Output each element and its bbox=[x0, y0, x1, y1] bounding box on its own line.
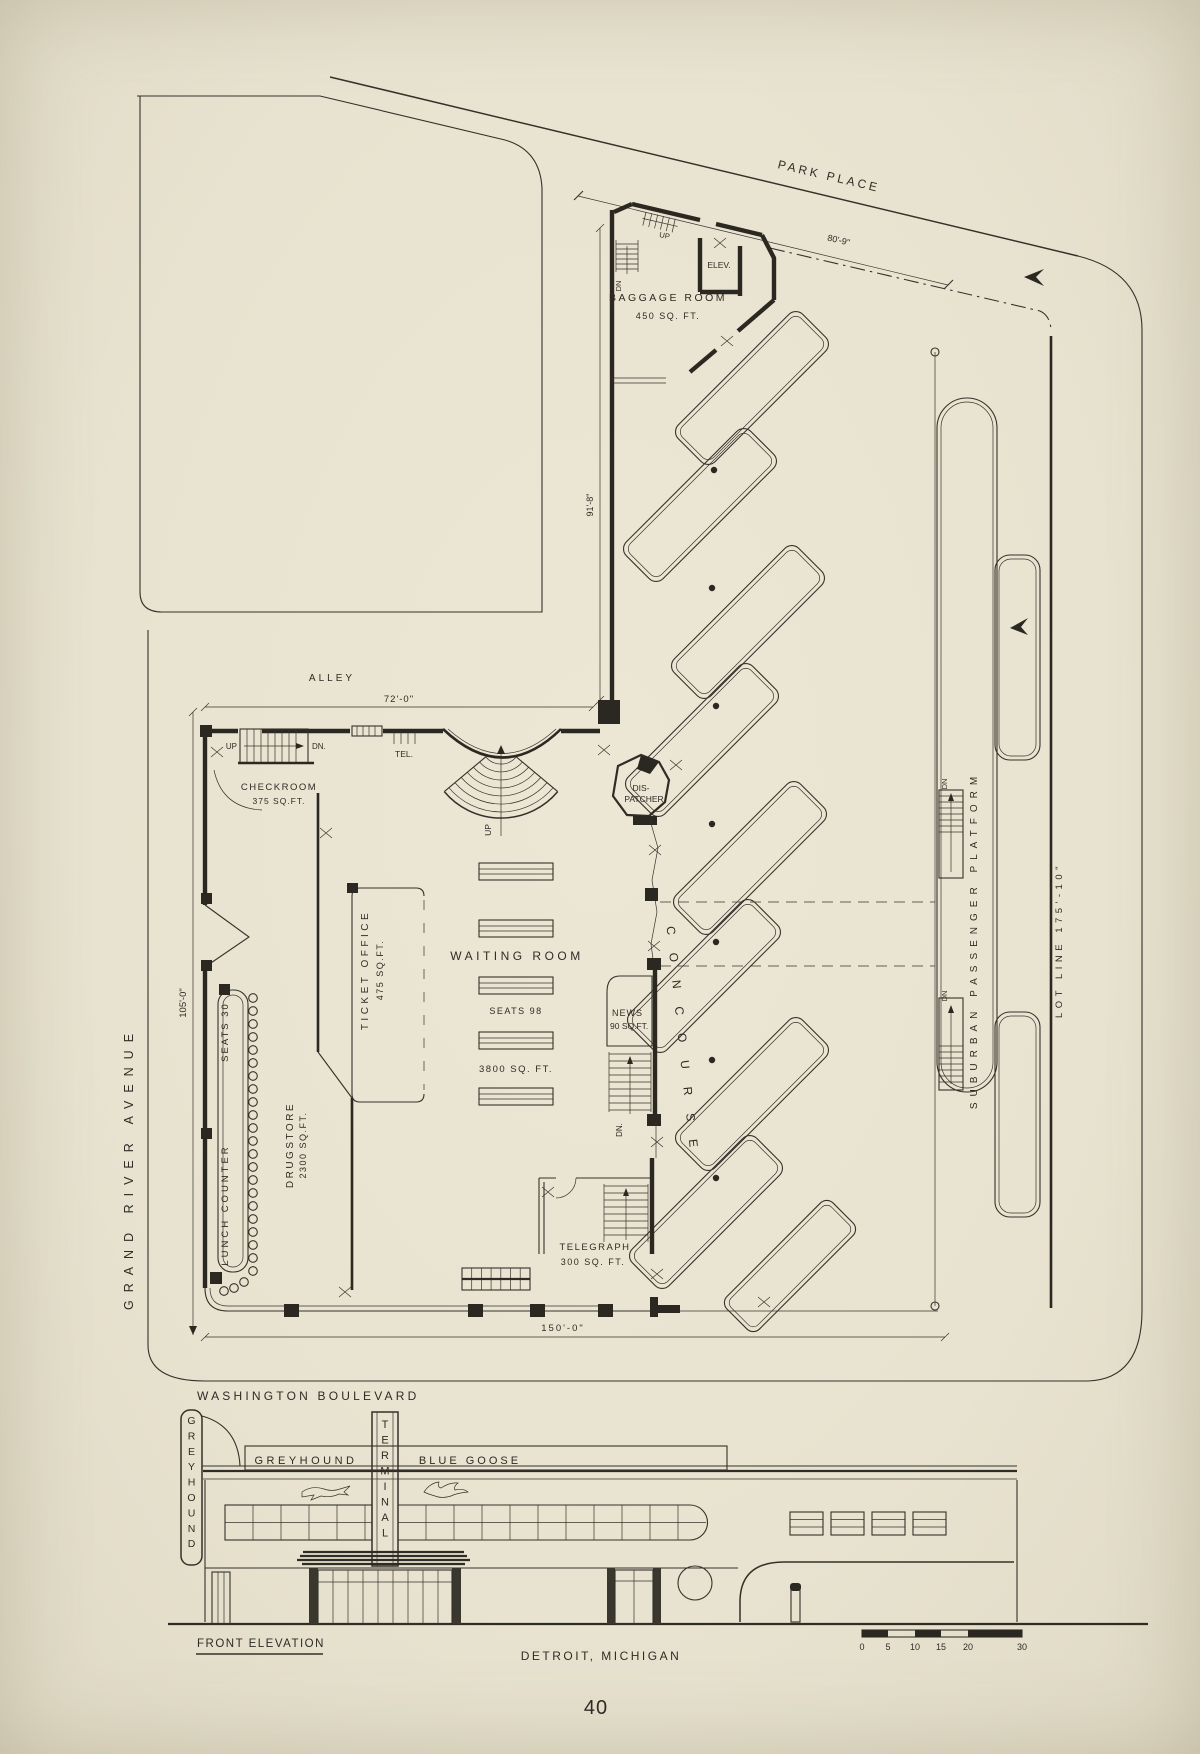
telegraph-label: TELEGRAPH bbox=[559, 1242, 630, 1253]
pier bbox=[598, 1304, 613, 1317]
bus-entrance-opening bbox=[740, 1562, 1014, 1622]
bus-bay bbox=[619, 424, 780, 585]
platform-stair bbox=[939, 998, 963, 1090]
front-elevation-title: FRONT ELEVATION bbox=[197, 1638, 325, 1650]
greyhound-dog-icon bbox=[302, 1486, 350, 1500]
east-curb-line bbox=[1078, 256, 1142, 1381]
concourse-colonnade bbox=[645, 820, 661, 974]
door-swing-x-icon bbox=[649, 845, 661, 855]
dim-80-9-label: 80'-9" bbox=[826, 233, 851, 248]
suburban-bus-stall bbox=[995, 555, 1040, 760]
page-number: 40 bbox=[584, 1697, 608, 1719]
door-hatch bbox=[357, 726, 375, 736]
elevator-label: ELEV. bbox=[707, 260, 730, 270]
door-swing-x-icon bbox=[211, 747, 223, 757]
blue-goose-band-sign: BLUE GOOSE bbox=[419, 1455, 521, 1467]
baggage-se-wall bbox=[690, 300, 774, 372]
lot-line-angled bbox=[770, 248, 1051, 332]
stair-down-label: DN bbox=[940, 779, 949, 790]
island-platform bbox=[937, 398, 997, 1092]
south-wall bbox=[205, 1288, 612, 1311]
door-swing-x-icon bbox=[339, 1287, 351, 1297]
bench bbox=[479, 977, 553, 994]
suburban-bus-stall-inner bbox=[999, 559, 1036, 756]
adjacent-block-outline bbox=[137, 96, 542, 612]
door-swing-x-icon bbox=[721, 336, 733, 346]
baggage-south-wall bbox=[614, 378, 666, 383]
pier bbox=[201, 893, 212, 904]
ribbon-windows bbox=[225, 1505, 708, 1540]
bollard bbox=[790, 1583, 801, 1622]
dim-line-150-0 bbox=[201, 1333, 949, 1341]
door-swing-x-icon bbox=[598, 745, 610, 755]
dim-105-0-label: 105'-0" bbox=[178, 988, 189, 1017]
lot-line-label: LOT LINE 175'-10" bbox=[1054, 862, 1065, 1018]
ticket-office-label: TICKET OFFICE bbox=[360, 910, 371, 1030]
yard-post bbox=[711, 467, 717, 473]
entrance-doors bbox=[309, 1568, 461, 1624]
scale-tick-20: 20 bbox=[963, 1642, 973, 1652]
telegraph-area: 300 SQ. FT. bbox=[561, 1257, 626, 1267]
entrance-marquee bbox=[297, 1552, 470, 1564]
bench bbox=[479, 1032, 553, 1049]
alley-label: ALLEY bbox=[309, 673, 355, 684]
lunch-counter-label: LUNCH COUNTER bbox=[220, 1144, 231, 1265]
baggage-stair-down bbox=[616, 240, 638, 274]
scale-tick-10: 10 bbox=[910, 1642, 920, 1652]
scale-tick-30: 30 bbox=[1017, 1642, 1027, 1652]
pier bbox=[219, 984, 230, 995]
greyhound-band-sign: GREYHOUND bbox=[254, 1455, 357, 1467]
yard-post bbox=[713, 1175, 719, 1181]
stair-up-label: UP bbox=[483, 824, 493, 836]
pier bbox=[530, 1304, 545, 1317]
dispatcher-label-2: PATCHER bbox=[624, 794, 663, 804]
ticket-office-area: 475 SQ.FT. bbox=[375, 940, 385, 1001]
door-swing-x-icon bbox=[320, 828, 332, 838]
door-swing-x-icon bbox=[670, 760, 682, 770]
pier bbox=[468, 1304, 483, 1317]
pier bbox=[200, 725, 212, 737]
news-stand bbox=[607, 958, 661, 1126]
pier bbox=[284, 1304, 299, 1317]
scale-tick-15: 15 bbox=[936, 1642, 946, 1652]
bus-bay bbox=[671, 307, 832, 468]
side-door bbox=[212, 1572, 230, 1624]
concourse-stair-down bbox=[609, 1052, 651, 1114]
small-windows bbox=[790, 1512, 946, 1535]
dim-91-8-label: 91'-8" bbox=[585, 494, 595, 517]
baggage-room-area: 450 SQ. FT. bbox=[636, 311, 701, 321]
suburban-bus-stall bbox=[995, 1012, 1040, 1217]
loading-lane-dashes bbox=[660, 902, 935, 966]
island-platform-inner bbox=[941, 402, 993, 1088]
waiting-room-label: WAITING ROOM bbox=[450, 949, 584, 963]
yard-post bbox=[713, 939, 719, 945]
bus-bay bbox=[625, 1131, 786, 1292]
grand-stair-fan bbox=[444, 745, 557, 836]
yard-post bbox=[713, 703, 719, 709]
lunch-counter-seats: SEATS 30 bbox=[220, 1002, 231, 1062]
drugstore-label: DRUGSTORE bbox=[285, 1102, 296, 1188]
scale-tick-5: 5 bbox=[885, 1642, 890, 1652]
park-place-label: PARK PLACE bbox=[776, 157, 881, 195]
front-elevation: GREYHOUND BLUE GOOSE GREYHOUND TERMINAL bbox=[168, 1410, 1148, 1663]
baggage-wing bbox=[612, 204, 774, 705]
stair-down-label: DN bbox=[614, 281, 623, 292]
bus-bay bbox=[721, 1197, 860, 1336]
dispatcher-label-1: DIS- bbox=[633, 783, 650, 793]
door-swing-x-icon bbox=[758, 1297, 770, 1307]
pier bbox=[210, 1272, 222, 1284]
stair-up-label: UP bbox=[226, 742, 237, 751]
platform-label: SUBURBAN PASSENGER PLATFORM bbox=[969, 771, 980, 1109]
blade-sign-letters: GREYHOUND bbox=[187, 1415, 195, 1550]
porthole-window bbox=[678, 1566, 712, 1600]
door-swing-x-icon bbox=[651, 1137, 663, 1147]
news-stand-label: NEWS bbox=[612, 1008, 643, 1018]
grand-river-avenue-label: GRAND RIVER AVENUE bbox=[122, 1026, 136, 1310]
pier bbox=[201, 960, 212, 971]
waiting-room-seats: SEATS 98 bbox=[489, 1006, 542, 1016]
door-swing-x-icon bbox=[651, 1269, 663, 1279]
dim-line-105-0 bbox=[189, 708, 197, 1335]
stair-down-label: DN. bbox=[615, 1123, 624, 1137]
bus-bay bbox=[667, 541, 828, 702]
yard-post bbox=[709, 585, 715, 591]
concourse-label: CONCOURSE bbox=[663, 925, 702, 1165]
turnstile-grid bbox=[462, 1268, 530, 1290]
stair-down-label: DN. bbox=[312, 742, 326, 751]
checkroom-label: CHECKROOM bbox=[241, 782, 317, 793]
dim-72-0-label: 72'-0" bbox=[384, 694, 414, 705]
baggage-room-label: BAGGAGE ROOM bbox=[609, 292, 727, 304]
door-swing-x-icon bbox=[648, 941, 660, 951]
bench bbox=[479, 1088, 553, 1105]
pier bbox=[201, 1128, 212, 1139]
ticket-counter bbox=[347, 883, 424, 1102]
right-doors bbox=[607, 1568, 661, 1624]
yard-post bbox=[709, 1057, 715, 1063]
bus-bay bbox=[669, 777, 830, 938]
south-wall-inner bbox=[210, 1288, 612, 1306]
bench bbox=[479, 920, 553, 937]
checkroom-area: 375 SQ.FT. bbox=[253, 796, 306, 806]
suburban-bus-stall-inner bbox=[999, 1016, 1036, 1213]
ne-corner-pier bbox=[598, 700, 620, 724]
bus-flow-arrow-icon bbox=[1010, 618, 1028, 635]
se-exit-steps bbox=[650, 1297, 680, 1317]
dim-arrow bbox=[189, 1326, 197, 1335]
checkroom-stair bbox=[238, 729, 314, 763]
north-door-leaf bbox=[352, 726, 382, 736]
bench bbox=[479, 863, 553, 880]
scale-bar: 0 5 10 15 20 30 bbox=[859, 1630, 1027, 1652]
dim-line-91-8 bbox=[596, 224, 604, 704]
entrance-bay bbox=[205, 905, 249, 967]
waiting-room-area: 3800 SQ. FT. bbox=[479, 1064, 553, 1075]
yard-post bbox=[709, 821, 715, 827]
dim-150-0-label: 150'-0" bbox=[541, 1323, 584, 1334]
terminal-drawing: PARK PLACE GRAND RIVER AVENUE WASHINGTON… bbox=[0, 0, 1200, 1754]
news-stand-area: 90 SQ.FT. bbox=[610, 1021, 648, 1031]
platform-stair bbox=[939, 790, 963, 878]
stair-up-label: UP bbox=[658, 230, 670, 241]
washington-boulevard-label: WASHINGTON BOULEVARD bbox=[197, 1389, 419, 1403]
scanned-drawing-page: PARK PLACE GRAND RIVER AVENUE WASHINGTON… bbox=[0, 0, 1200, 1754]
drugstore-partition-jog bbox=[318, 1052, 352, 1098]
park-place-street-line bbox=[330, 77, 1078, 256]
plan-labels: PARK PLACE GRAND RIVER AVENUE WASHINGTON… bbox=[122, 157, 1065, 1403]
telephone-label: TEL. bbox=[395, 749, 413, 759]
blue-goose-bird-icon bbox=[424, 1482, 468, 1498]
blade-sign-fin bbox=[202, 1416, 240, 1466]
bus-flow-arrow-icon bbox=[1024, 269, 1044, 286]
scale-tick-0: 0 bbox=[859, 1642, 864, 1652]
drugstore-area: 2300 SQ.FT. bbox=[298, 1111, 308, 1178]
elevation-caption: DETROIT, MICHIGAN bbox=[521, 1649, 682, 1663]
stair-down-label: DN bbox=[940, 991, 949, 1002]
door-swing-x-icon bbox=[714, 238, 726, 248]
